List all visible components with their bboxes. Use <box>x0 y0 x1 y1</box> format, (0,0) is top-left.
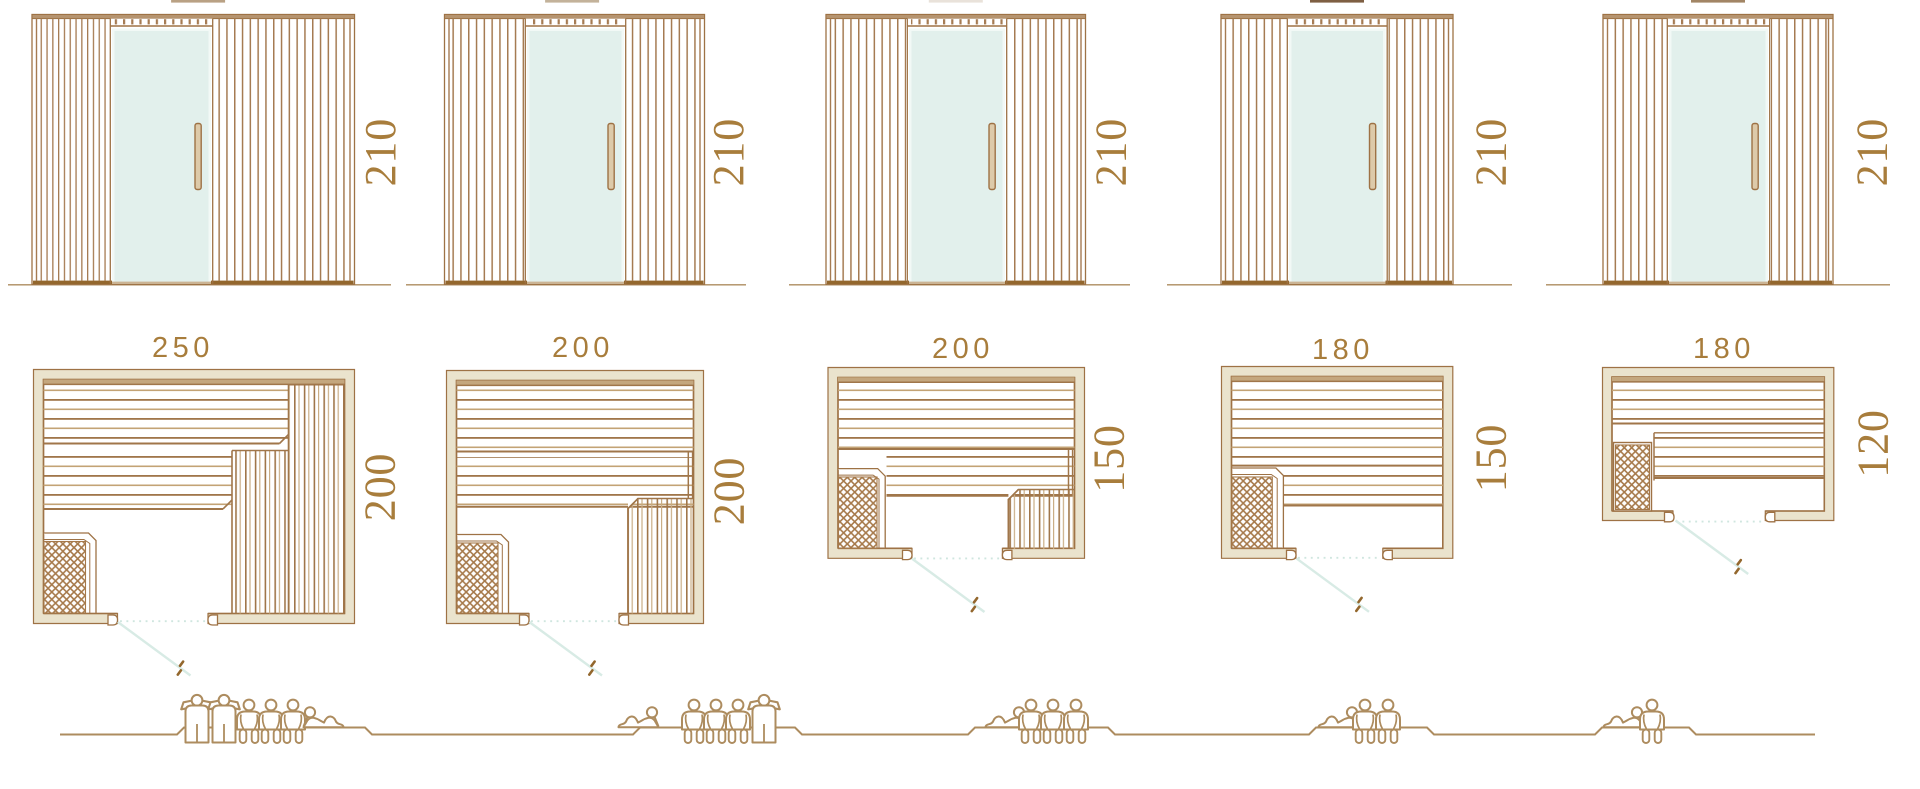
svg-text:200: 200 <box>932 333 994 365</box>
svg-text:200: 200 <box>705 457 754 525</box>
svg-text:210: 210 <box>704 118 753 186</box>
svg-text:200: 200 <box>356 453 405 521</box>
svg-text:210: 210 <box>1467 118 1516 186</box>
svg-text:180: 180 <box>1312 334 1374 366</box>
svg-text:210: 210 <box>356 118 405 186</box>
svg-text:120: 120 <box>1849 409 1898 477</box>
svg-text:150: 150 <box>1085 424 1134 492</box>
svg-text:210: 210 <box>1087 118 1136 186</box>
svg-text:200: 200 <box>552 332 614 364</box>
svg-text:250: 250 <box>152 332 214 364</box>
svg-text:150: 150 <box>1467 424 1516 492</box>
svg-text:210: 210 <box>1848 118 1897 186</box>
svg-text:180: 180 <box>1693 333 1755 365</box>
